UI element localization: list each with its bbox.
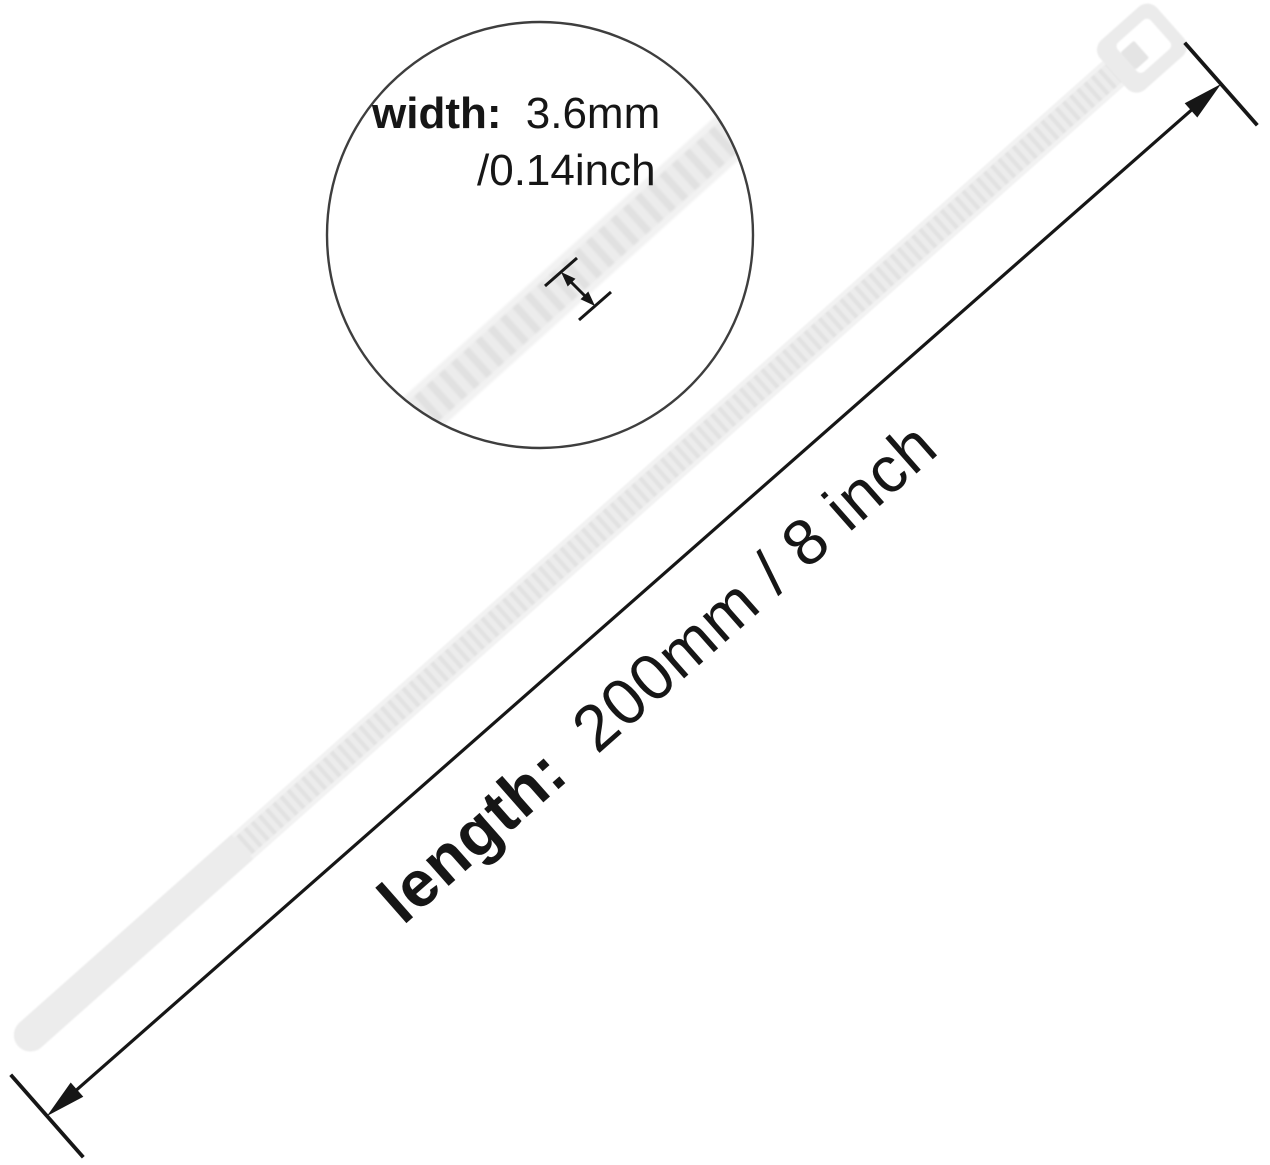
product-diagram: length: 200mm / 8 inch width: 3.6mm /0.1… bbox=[0, 0, 1270, 1165]
width-label-line2: /0.14inch bbox=[477, 146, 656, 195]
diagram-svg: length: 200mm / 8 inch width: 3.6mm /0.1… bbox=[0, 0, 1270, 1165]
lens-background bbox=[327, 22, 753, 448]
